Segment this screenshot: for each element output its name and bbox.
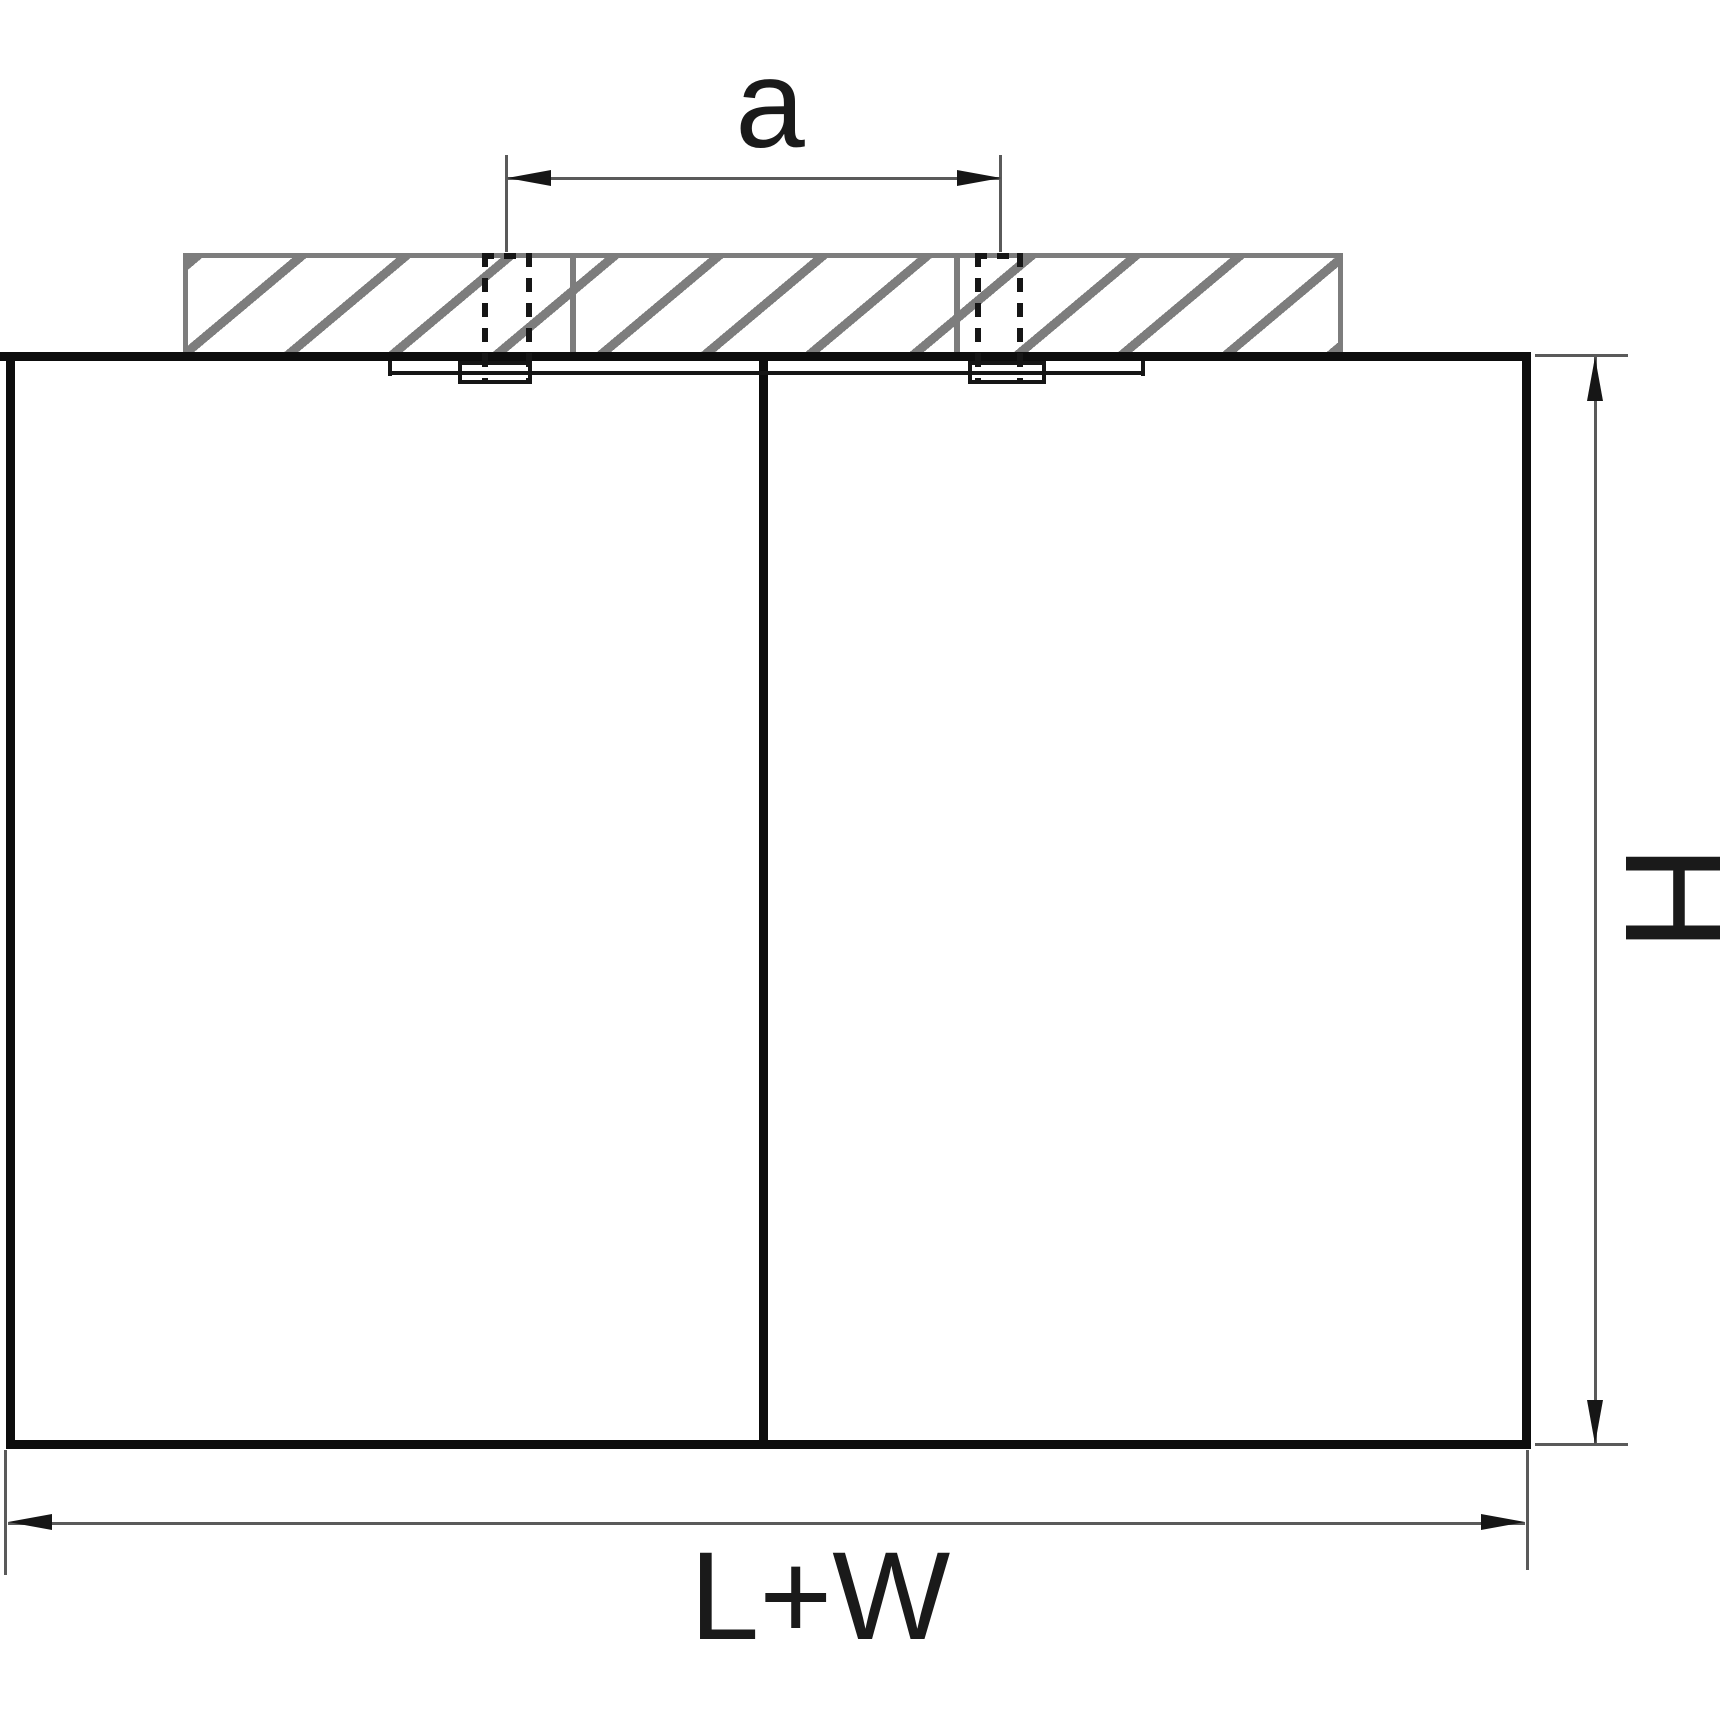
dashed-line [1017,253,1023,382]
arrowhead-down [1587,1400,1603,1444]
dashed-line [482,253,532,259]
arrowhead-up [1587,357,1603,401]
mounting-rail-end-left [388,361,392,376]
dimension-label-h: H [1610,818,1720,978]
dashed-line [975,253,981,382]
arrowhead-right [957,170,1001,186]
dashed-line [482,253,488,382]
dimension-line-lw [8,1522,1525,1525]
ceiling-seam-right [954,253,960,356]
extension-line [1535,1443,1628,1446]
extension-line [1526,1450,1529,1570]
mounting-rail-end-right [1141,361,1145,376]
ceiling-section-hatched [183,253,1343,357]
fixture-panel-divider [759,352,768,1449]
mounting-hole-right [975,253,1023,382]
dashed-line [975,253,1023,259]
arrowhead-right [1481,1514,1525,1530]
dimension-label-a: a [690,42,850,167]
arrowhead-left [8,1514,52,1530]
ceiling-seam-left [570,253,576,356]
extension-line [1535,354,1628,357]
technical-drawing-canvas: a H L+W [0,0,1720,1720]
dashed-line [526,253,532,382]
dimension-line-a [507,177,1001,180]
fixture-body-outline [6,352,1531,1449]
extension-line [4,1450,7,1575]
mounting-hole-left [482,253,532,382]
fixture-top-edge [0,352,16,361]
arrowhead-left [507,170,551,186]
dimension-label-lw: L+W [640,1534,1000,1659]
